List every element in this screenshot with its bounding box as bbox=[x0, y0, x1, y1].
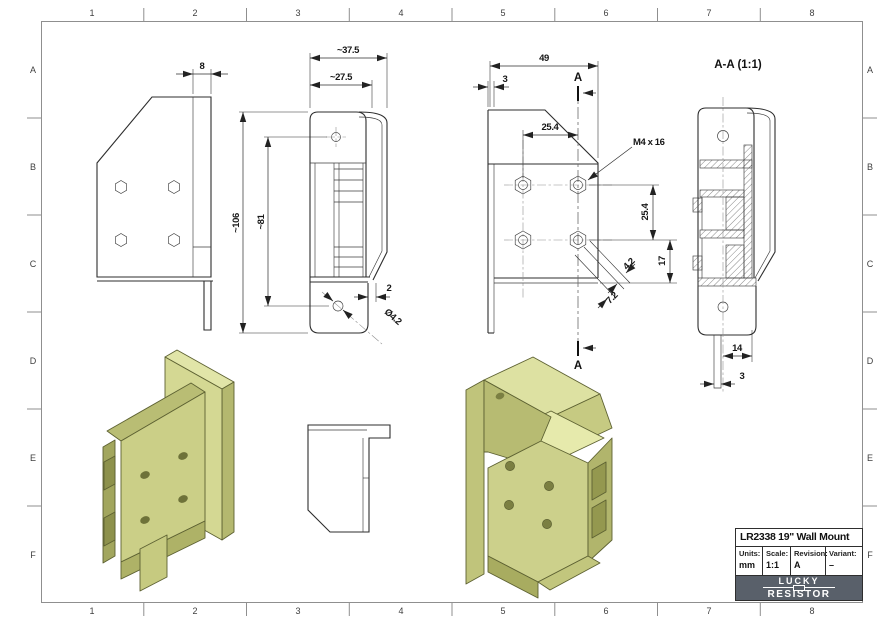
field-variant: Variant: – bbox=[826, 547, 862, 575]
section-letter-top: A bbox=[574, 72, 582, 84]
view-back: A A 49 3 25.4 M4 x 16 25.4 17 bbox=[473, 53, 677, 372]
dim-front-hole-dia: Ø4.2 bbox=[382, 307, 404, 328]
dim-back-hole-offset: 25.4 bbox=[542, 122, 560, 133]
dim-back-slot-length: 7.2 bbox=[604, 290, 620, 306]
field-revision-value: A bbox=[794, 560, 825, 570]
dim-section-tab-thickness: 3 bbox=[740, 371, 745, 382]
dim-back-slot-width: 4.2 bbox=[621, 256, 637, 272]
field-variant-value: – bbox=[829, 560, 862, 570]
drawing-sheet: 1 2 3 4 5 6 7 8 1 2 3 4 5 6 7 8 A B C D … bbox=[0, 0, 884, 625]
dim-front-hook-width: ~27.5 bbox=[330, 72, 353, 83]
field-units-value: mm bbox=[739, 560, 762, 570]
field-scale-label: Scale: bbox=[766, 549, 790, 558]
title-block: LR2338 19" Wall Mount Units: mm Scale: 1… bbox=[735, 528, 863, 601]
drawing-title: LR2338 19" Wall Mount bbox=[736, 529, 862, 547]
dim-front-gap: 2 bbox=[387, 283, 392, 294]
lucky-resistor-logo: LUCKY RESISTOR bbox=[736, 576, 862, 600]
dim-front-width: ~37.5 bbox=[337, 45, 360, 56]
view-section: A-A (1:1) 14 3 bbox=[693, 59, 775, 394]
field-units: Units: mm bbox=[736, 547, 763, 575]
field-scale: Scale: 1:1 bbox=[763, 547, 791, 575]
thread-callout: M4 x 16 bbox=[633, 137, 665, 148]
field-revision-label: Revision: bbox=[794, 549, 825, 558]
view-front: Ø4.2 2 ~37.5 ~27.5 ~106 ~81 bbox=[231, 45, 404, 344]
dim-back-width: 49 bbox=[539, 53, 549, 64]
dim-side-thickness: 8 bbox=[200, 61, 205, 72]
dim-front-height: ~106 bbox=[231, 213, 242, 233]
dim-section-tab-width: 14 bbox=[732, 343, 743, 354]
field-scale-value: 1:1 bbox=[766, 560, 790, 570]
dim-back-hole-pitch: 25.4 bbox=[640, 202, 651, 220]
dim-back-bottom-offset: 17 bbox=[657, 256, 668, 266]
section-view-title: A-A (1:1) bbox=[714, 59, 762, 71]
iso-view-interior bbox=[466, 357, 612, 598]
title-block-fields: Units: mm Scale: 1:1 Revision: A Variant… bbox=[736, 547, 862, 576]
field-units-label: Units: bbox=[739, 549, 762, 558]
view-top-outline bbox=[308, 425, 390, 532]
iso-view-front bbox=[103, 350, 234, 591]
logo-resistor-icon bbox=[763, 587, 835, 588]
logo-line2: RESISTOR bbox=[768, 589, 831, 600]
field-variant-label: Variant: bbox=[829, 549, 862, 558]
field-revision: Revision: A bbox=[791, 547, 826, 575]
dim-back-wall: 3 bbox=[503, 74, 508, 85]
view-side-left: 8 bbox=[97, 61, 228, 330]
section-letter-bottom: A bbox=[574, 360, 582, 372]
dim-front-hole-span: ~81 bbox=[256, 213, 267, 229]
